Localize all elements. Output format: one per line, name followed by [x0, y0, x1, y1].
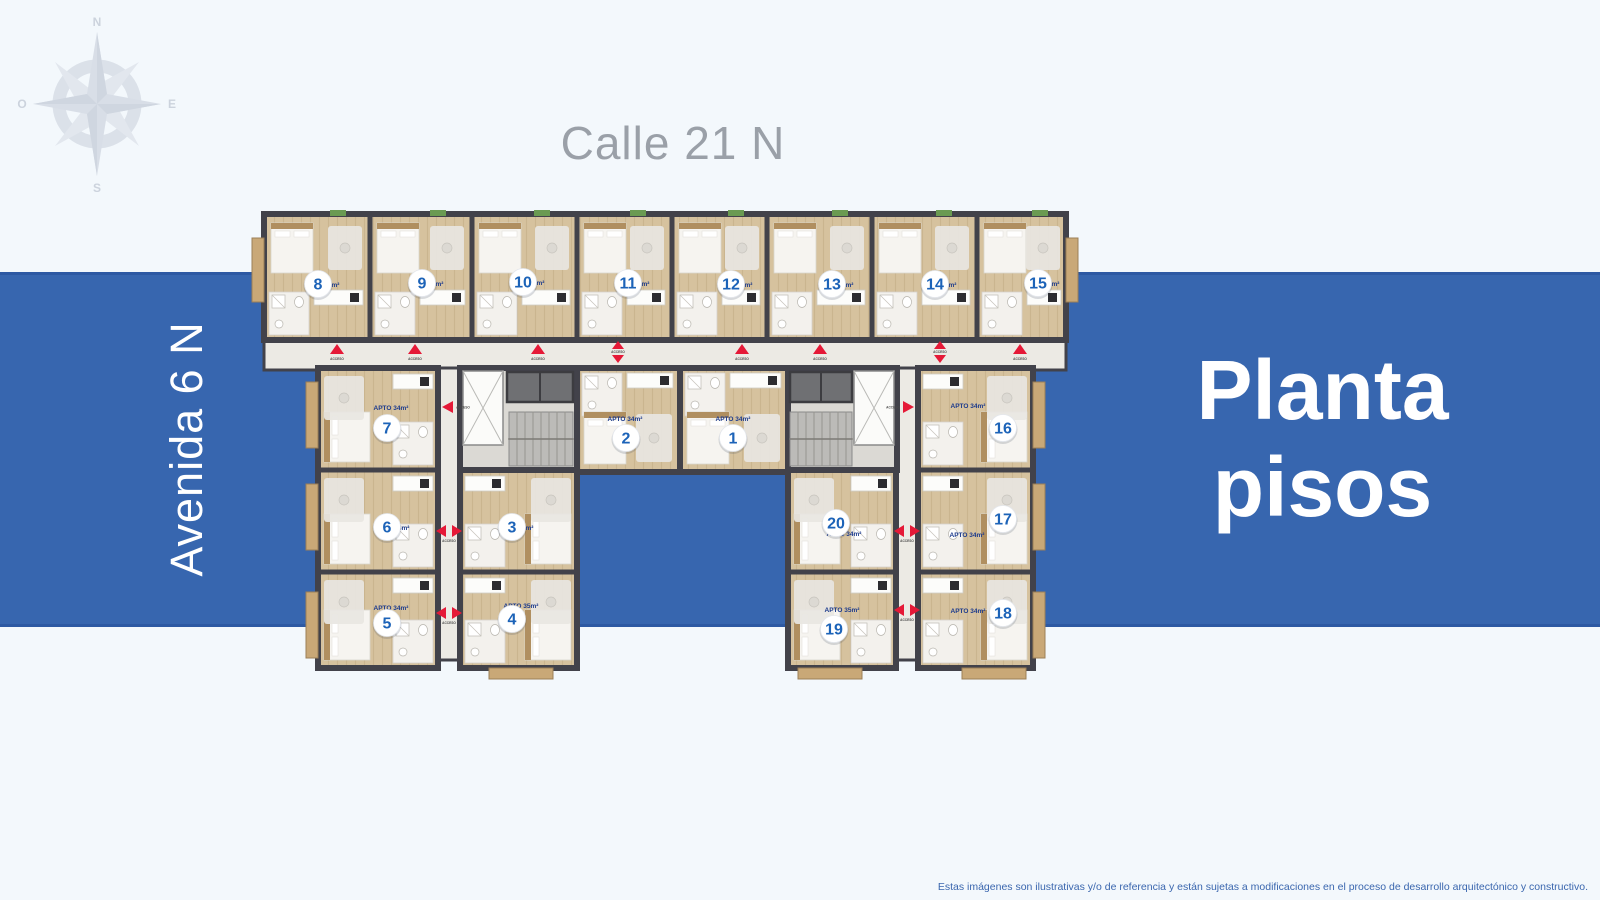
toilet	[798, 297, 807, 308]
stove	[557, 293, 566, 302]
pillow	[502, 231, 517, 237]
sink	[588, 320, 596, 328]
sink	[483, 320, 491, 328]
toilet	[1008, 297, 1017, 308]
pillow	[294, 231, 309, 237]
unit-number: 13	[823, 277, 841, 294]
sink	[399, 552, 407, 560]
pillow	[802, 541, 808, 560]
sink	[588, 401, 596, 409]
stove	[350, 293, 359, 302]
access-label: ACCESO	[611, 350, 625, 354]
table	[340, 243, 350, 253]
stove	[768, 376, 777, 385]
sink	[275, 320, 283, 328]
toilet	[419, 625, 428, 636]
pillow	[989, 637, 995, 656]
access-label: ACCESO	[456, 406, 470, 410]
pillow	[533, 541, 539, 560]
unit-number: 3	[508, 520, 517, 537]
toilet	[608, 297, 617, 308]
pillow	[691, 420, 706, 426]
pillow	[275, 231, 290, 237]
sink	[471, 552, 479, 560]
access-label: ACCESO	[735, 357, 749, 361]
unit-number: 1	[729, 431, 738, 448]
sink	[683, 320, 691, 328]
unit-number: 17	[994, 512, 1012, 529]
access-label: ACCESO	[408, 357, 422, 361]
headboard	[774, 223, 816, 229]
sink	[399, 450, 407, 458]
pillow	[702, 231, 717, 237]
toilet	[401, 297, 410, 308]
pillow	[332, 541, 338, 560]
access-label: ACCESO	[886, 406, 900, 410]
stove	[420, 377, 429, 386]
unit-number: 6	[383, 520, 392, 537]
sink	[471, 648, 479, 656]
headboard	[271, 223, 313, 229]
access-label: ACCESO	[330, 357, 344, 361]
unit-area-label: APTO 35m²	[825, 607, 861, 614]
stove	[420, 479, 429, 488]
access-label: ACCESO	[531, 357, 545, 361]
table	[757, 433, 767, 443]
bed	[479, 223, 521, 273]
table	[809, 597, 819, 607]
stove	[452, 293, 461, 302]
bed	[271, 223, 313, 273]
unit-area-label: APTO 34m²	[950, 532, 986, 539]
stove	[1048, 293, 1057, 302]
sink	[691, 401, 699, 409]
toilet	[949, 625, 958, 636]
unit-number: 4	[508, 612, 517, 629]
headboard	[525, 514, 531, 564]
toilet	[608, 378, 617, 389]
unit-number: 2	[622, 431, 631, 448]
unit-number: 11	[620, 276, 637, 293]
pillow	[332, 637, 338, 656]
table	[339, 393, 349, 403]
stove	[747, 293, 756, 302]
pillow	[989, 439, 995, 458]
bed	[879, 223, 921, 273]
headboard	[479, 223, 521, 229]
headboard	[981, 514, 987, 564]
unit-2: APTO 34m²2	[582, 373, 673, 464]
pillow	[332, 439, 338, 458]
toilet	[503, 297, 512, 308]
sink	[883, 320, 891, 328]
table	[649, 433, 659, 443]
sink	[399, 648, 407, 656]
pillow	[988, 231, 1003, 237]
unit-area-label: APTO 34m²	[951, 403, 987, 410]
stove	[492, 581, 501, 590]
unit-area-label: APTO 34m²	[951, 608, 987, 615]
unit-number: 5	[383, 616, 392, 633]
unit-area-label: APTO 34m²	[374, 405, 410, 412]
unit-area-label: APTO 34m²	[716, 416, 752, 423]
stove	[950, 377, 959, 386]
sink	[929, 450, 937, 458]
headboard	[377, 223, 419, 229]
table	[442, 243, 452, 253]
access-label: ACCESO	[442, 539, 456, 543]
headboard	[981, 412, 987, 462]
pillow	[778, 231, 793, 237]
toilet	[703, 297, 712, 308]
toilet	[903, 297, 912, 308]
access-label: ACCESO	[900, 618, 914, 622]
pillow	[607, 231, 622, 237]
stove	[420, 581, 429, 590]
pillow	[683, 231, 698, 237]
pillow	[802, 637, 808, 656]
unit-number: 8	[314, 277, 323, 294]
stove	[652, 293, 661, 302]
toilet	[949, 427, 958, 438]
pillow	[381, 231, 396, 237]
unit-1: APTO 34m²1	[685, 373, 781, 464]
unit-number: 12	[722, 277, 740, 294]
table	[947, 243, 957, 253]
sink	[778, 320, 786, 328]
access-label: ACCESO	[933, 350, 947, 354]
bed	[984, 223, 1026, 273]
table	[642, 243, 652, 253]
sink	[929, 648, 937, 656]
pillow	[1007, 231, 1022, 237]
pillow	[400, 231, 415, 237]
pillow	[883, 231, 898, 237]
table	[1002, 393, 1012, 403]
pillow	[989, 541, 995, 560]
pillow	[483, 231, 498, 237]
table	[1038, 243, 1048, 253]
bed	[774, 223, 816, 273]
sink	[857, 648, 865, 656]
sink	[857, 552, 865, 560]
table	[339, 495, 349, 505]
stove	[950, 479, 959, 488]
sink	[929, 552, 937, 560]
unit-number: 15	[1029, 276, 1047, 293]
pillow	[797, 231, 812, 237]
access-label: ACCESO	[442, 621, 456, 625]
stove	[950, 581, 959, 590]
pillow	[533, 637, 539, 656]
access-label: ACCESO	[1013, 357, 1027, 361]
table	[546, 597, 556, 607]
floor-plan: APTO 34m²1APTO 34m²2APTO 34m²3APTO 35m²4…	[0, 0, 1600, 900]
headboard	[879, 223, 921, 229]
table	[547, 243, 557, 253]
table	[339, 597, 349, 607]
access-label: ACCESO	[813, 357, 827, 361]
corridor-left-leg	[438, 368, 460, 660]
stove	[878, 479, 887, 488]
table	[737, 243, 747, 253]
unit-number: 9	[418, 276, 427, 293]
table	[546, 495, 556, 505]
headboard	[981, 610, 987, 660]
unit-number: 18	[994, 606, 1012, 623]
stove	[660, 376, 669, 385]
toilet	[419, 529, 428, 540]
unit-area-label: APTO 34m²	[608, 416, 644, 423]
stove	[852, 293, 861, 302]
headboard	[984, 223, 1026, 229]
toilet	[877, 529, 886, 540]
bed	[679, 223, 721, 273]
stove	[492, 479, 501, 488]
unit-number: 19	[825, 622, 843, 639]
headboard	[679, 223, 721, 229]
pillow	[588, 231, 603, 237]
toilet	[877, 625, 886, 636]
toilet	[491, 625, 500, 636]
headboard	[584, 223, 626, 229]
access-label: ACCESO	[900, 539, 914, 543]
table	[809, 495, 819, 505]
toilet	[711, 378, 720, 389]
bed	[377, 223, 419, 273]
table	[842, 243, 852, 253]
stove	[878, 581, 887, 590]
bed	[584, 223, 626, 273]
stove	[957, 293, 966, 302]
unit-number: 16	[994, 421, 1012, 438]
toilet	[419, 427, 428, 438]
unit-number: 7	[383, 421, 392, 438]
unit-number: 14	[926, 277, 944, 294]
sink	[381, 320, 389, 328]
pillow	[902, 231, 917, 237]
unit-number: 10	[514, 275, 532, 292]
sink	[988, 320, 996, 328]
unit-number: 20	[827, 516, 845, 533]
pillow	[588, 420, 603, 426]
toilet	[295, 297, 304, 308]
table	[1002, 495, 1012, 505]
